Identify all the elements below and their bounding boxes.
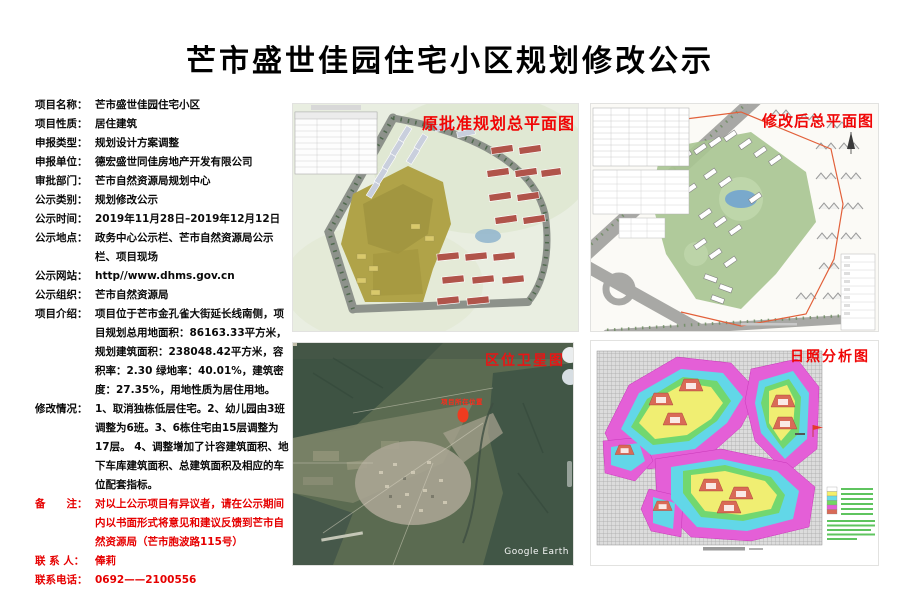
project-location-marker xyxy=(458,408,469,423)
field-label: 申报单位： xyxy=(35,153,95,172)
field-label: 公示网站： xyxy=(35,267,95,286)
field-label: 修改情况： xyxy=(35,400,95,419)
field-label: 审批部门： xyxy=(35,172,95,191)
field-notice-type: 公示类别：规划修改公示 xyxy=(35,191,289,210)
field-contact-phone: 联系电话：0692——2100556 xyxy=(35,571,289,590)
field-remarks: 备 注：对以上公示项目有异议者，请在公示期间内以书面形式将意见和建议反馈到芒市自… xyxy=(35,495,289,552)
field-label: 项目性质： xyxy=(35,115,95,134)
legend-color-bar xyxy=(827,487,837,514)
field-label: 备 注： xyxy=(35,495,95,514)
field-value: 0692——2100556 xyxy=(95,571,289,590)
info-column: 项目名称：芒市盛世佳园住宅小区 项目性质：居住建筑 申报类型：规划设计方案调整 … xyxy=(35,96,289,590)
project-location-text: 项目所在位置 xyxy=(441,396,483,406)
field-value: 对以上公示项目有异议者，请在公示期间内以书面形式将意见和建议反馈到芒市自然资源局… xyxy=(95,495,289,552)
field-value: 居住建筑 xyxy=(95,115,289,134)
field-approval-dept: 审批部门：芒市自然资源局规划中心 xyxy=(35,172,289,191)
field-notice-period: 公示时间：2019年11月28日–2019年12月12日 xyxy=(35,210,289,229)
pond xyxy=(475,229,501,243)
satellite-image xyxy=(293,343,573,565)
google-earth-watermark: Google Earth xyxy=(504,547,569,557)
field-value: 规划修改公示 xyxy=(95,191,289,210)
field-application-type: 申报类型：规划设计方案调整 xyxy=(35,134,289,153)
field-project-name: 项目名称：芒市盛世佳园住宅小区 xyxy=(35,96,289,115)
field-value: http//www.dhms.gov.cn xyxy=(95,267,289,286)
field-label: 公示类别： xyxy=(35,191,95,210)
panel-sunshine-analysis: 日照分析图 xyxy=(590,340,879,566)
field-value: 芒市盛世佳园住宅小区 xyxy=(95,96,289,115)
field-value: 芒市自然资源局 xyxy=(95,286,289,305)
caption-smudge xyxy=(741,323,797,326)
field-project-intro: 项目介绍：项目位于芒市金孔雀大街延长线南侧，项目规划总用地面积：86163.33… xyxy=(35,305,289,400)
panel-satellite-map: 区位卫星图 项目所在位置 Google Earth xyxy=(292,342,574,566)
field-modifications: 修改情况：1、取消独栋低层住宅。2、幼儿园由3班 调整为6班。3、6栋住宅由15… xyxy=(35,400,289,495)
field-label: 项目介绍： xyxy=(35,305,95,324)
legend-table xyxy=(841,254,875,330)
field-label: 申报类型： xyxy=(35,134,95,153)
field-value: 2019年11月28日–2019年12月12日 xyxy=(95,210,289,229)
field-notice-locations: 公示地点：政务中心公示栏、芒市自然资源局公示栏、项目现场 xyxy=(35,229,289,267)
field-label: 联 系 人： xyxy=(35,552,95,571)
field-contact-person: 联 系 人：俸莉 xyxy=(35,552,289,571)
field-notice-website: 公示网站：http//www.dhms.gov.cn xyxy=(35,267,289,286)
original-plan-label: 原批准规划总平面图 xyxy=(422,110,575,134)
field-notice-org: 公示组织：芒市自然资源局 xyxy=(35,286,289,305)
field-label: 联系电话： xyxy=(35,571,95,590)
field-label: 公示地点： xyxy=(35,229,95,248)
field-value: 德宏盛世同佳房地产开发有限公司 xyxy=(95,153,289,172)
field-value: 俸莉 xyxy=(95,552,289,571)
field-value: 政务中心公示栏、芒市自然资源局公示栏、项目现场 xyxy=(95,229,289,267)
modified-plan-image xyxy=(591,104,878,331)
announcement-page: 芒市盛世佳园住宅小区规划修改公示 项目名称：芒市盛世佳园住宅小区 项目性质：居住… xyxy=(0,0,900,599)
indicator-table xyxy=(295,105,377,174)
field-value: 规划设计方案调整 xyxy=(95,134,289,153)
field-label: 公示组织： xyxy=(35,286,95,305)
field-value: 芒市自然资源局规划中心 xyxy=(95,172,289,191)
modified-plan-label: 修改后总平面图 xyxy=(762,110,874,131)
field-value: 项目位于芒市金孔雀大街延长线南侧，项目规划总用地面积：86163.33平方米， … xyxy=(95,305,289,400)
sunshine-analysis-image xyxy=(591,341,878,565)
panel-original-plan: 原批准规划总平面图 xyxy=(292,103,579,332)
field-value: 1、取消独栋低层住宅。2、幼儿园由3班 调整为6班。3、6栋住宅由15层调整为1… xyxy=(95,400,289,495)
page-title: 芒市盛世佳园住宅小区规划修改公示 xyxy=(0,36,900,80)
panel-modified-plan: 修改后总平面图 xyxy=(590,103,879,332)
sunshine-analysis-label: 日照分析图 xyxy=(790,346,870,366)
original-plan-image xyxy=(293,104,578,331)
field-applicant: 申报单位：德宏盛世同佳房地产开发有限公司 xyxy=(35,153,289,172)
field-label: 项目名称： xyxy=(35,96,95,115)
field-label: 公示时间： xyxy=(35,210,95,229)
satellite-map-label: 区位卫星图 xyxy=(485,350,565,370)
field-project-type: 项目性质：居住建筑 xyxy=(35,115,289,134)
